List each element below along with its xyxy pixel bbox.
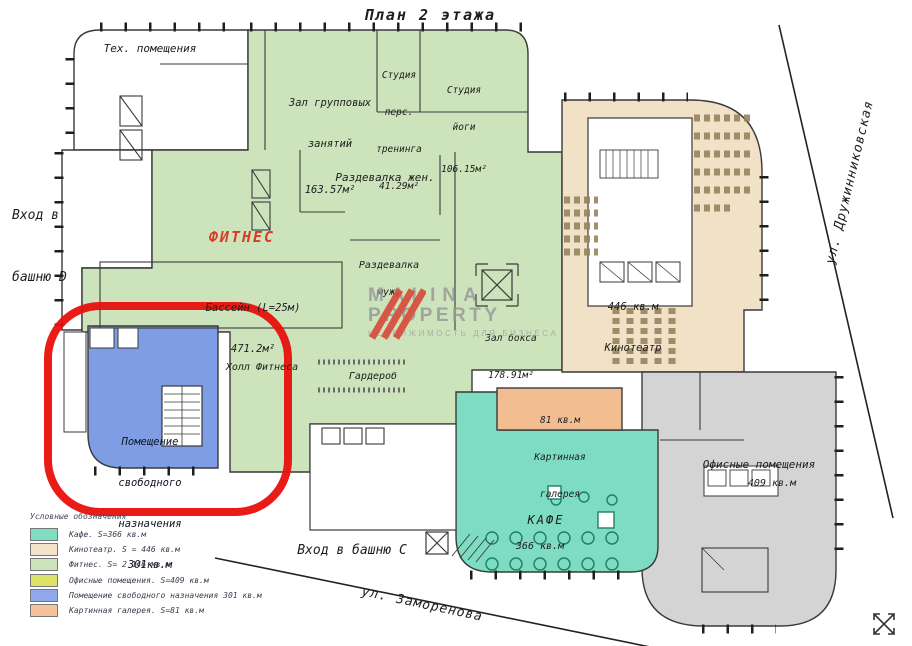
legend-item-cafe: Кафе. S=366 кв.м: [30, 527, 262, 542]
room-label-cafe-area: 366 кв.м: [516, 540, 564, 553]
legend-swatch-cinema: [30, 543, 58, 556]
zone-offices: [642, 372, 836, 626]
legend-header: Условные обозначения: [30, 512, 262, 521]
room-label-fitness: ФИТНЕС: [209, 228, 275, 248]
diagonal-arrows-icon: [874, 614, 894, 634]
room-label-locker-men-1: Раздевалка: [359, 259, 419, 272]
legend-item-cinema: Кинотеатр. S = 446 кв.м: [30, 542, 262, 557]
watermark: MALINA PROPERTY НЕДВИЖИМОСТЬ ДЛЯ БИЗНЕСА: [368, 286, 558, 338]
floor-plan-canvas: { "title": "План 2 этажа", "streets": { …: [0, 0, 912, 646]
legend-swatch-cafe: [30, 528, 58, 541]
legend: Условные обозначения Кафе. S=366 кв.м Ки…: [30, 512, 262, 618]
legend-swatch-gallery: [30, 604, 58, 617]
legend-item-gallery: Картинная галерея. S=81 кв.м: [30, 603, 262, 618]
room-label-locker-women: Раздевалка жен.: [335, 171, 434, 185]
entrance-d-label: Вход в башню D: [12, 164, 67, 310]
legend-item-fitness: Фитнес. S= 2 146 кв.м: [30, 557, 262, 572]
utility-room: [90, 328, 114, 348]
utility-rooms-left: [64, 332, 86, 432]
legend-item-offices: Офисные помещения. S=409 кв.м: [30, 573, 262, 588]
malina-logo-icon: [368, 286, 426, 340]
room-label-offices-area: 409 кв.м: [748, 477, 796, 490]
room-label-cinema: 446 кв.м Кинотеатр: [605, 274, 662, 369]
room-label-wardrobe: Гардероб: [349, 370, 397, 383]
room-label-yoga: Студия йоги 106.15м²: [441, 60, 487, 188]
room-label-tech: Тех. помещения: [104, 42, 197, 56]
utility-room: [118, 328, 138, 348]
legend-swatch-offices: [30, 574, 58, 587]
zone-corridor: [310, 424, 456, 530]
room-label-group-hall: Зал групповых занятий 163.57м²: [289, 70, 371, 211]
entrance-c-label: Вход в башню C: [297, 543, 407, 560]
legend-swatch-fitness: [30, 558, 58, 571]
room-label-gallery: 81 кв.м Картинная галерея: [534, 390, 585, 513]
room-label-offices: Офисные помещения: [703, 458, 816, 472]
legend-swatch-free-room: [30, 589, 58, 602]
page-title: План 2 этажа: [364, 6, 496, 26]
room-label-fitness-hall: Холл Фитнеса: [226, 361, 298, 374]
legend-item-free-room: Помещение свободного назначения 301 кв.м: [30, 588, 262, 603]
room-label-pool: Бассейн (L=25м) 471.2м²: [206, 275, 301, 370]
room-label-cafe: КАФЕ: [528, 513, 565, 529]
